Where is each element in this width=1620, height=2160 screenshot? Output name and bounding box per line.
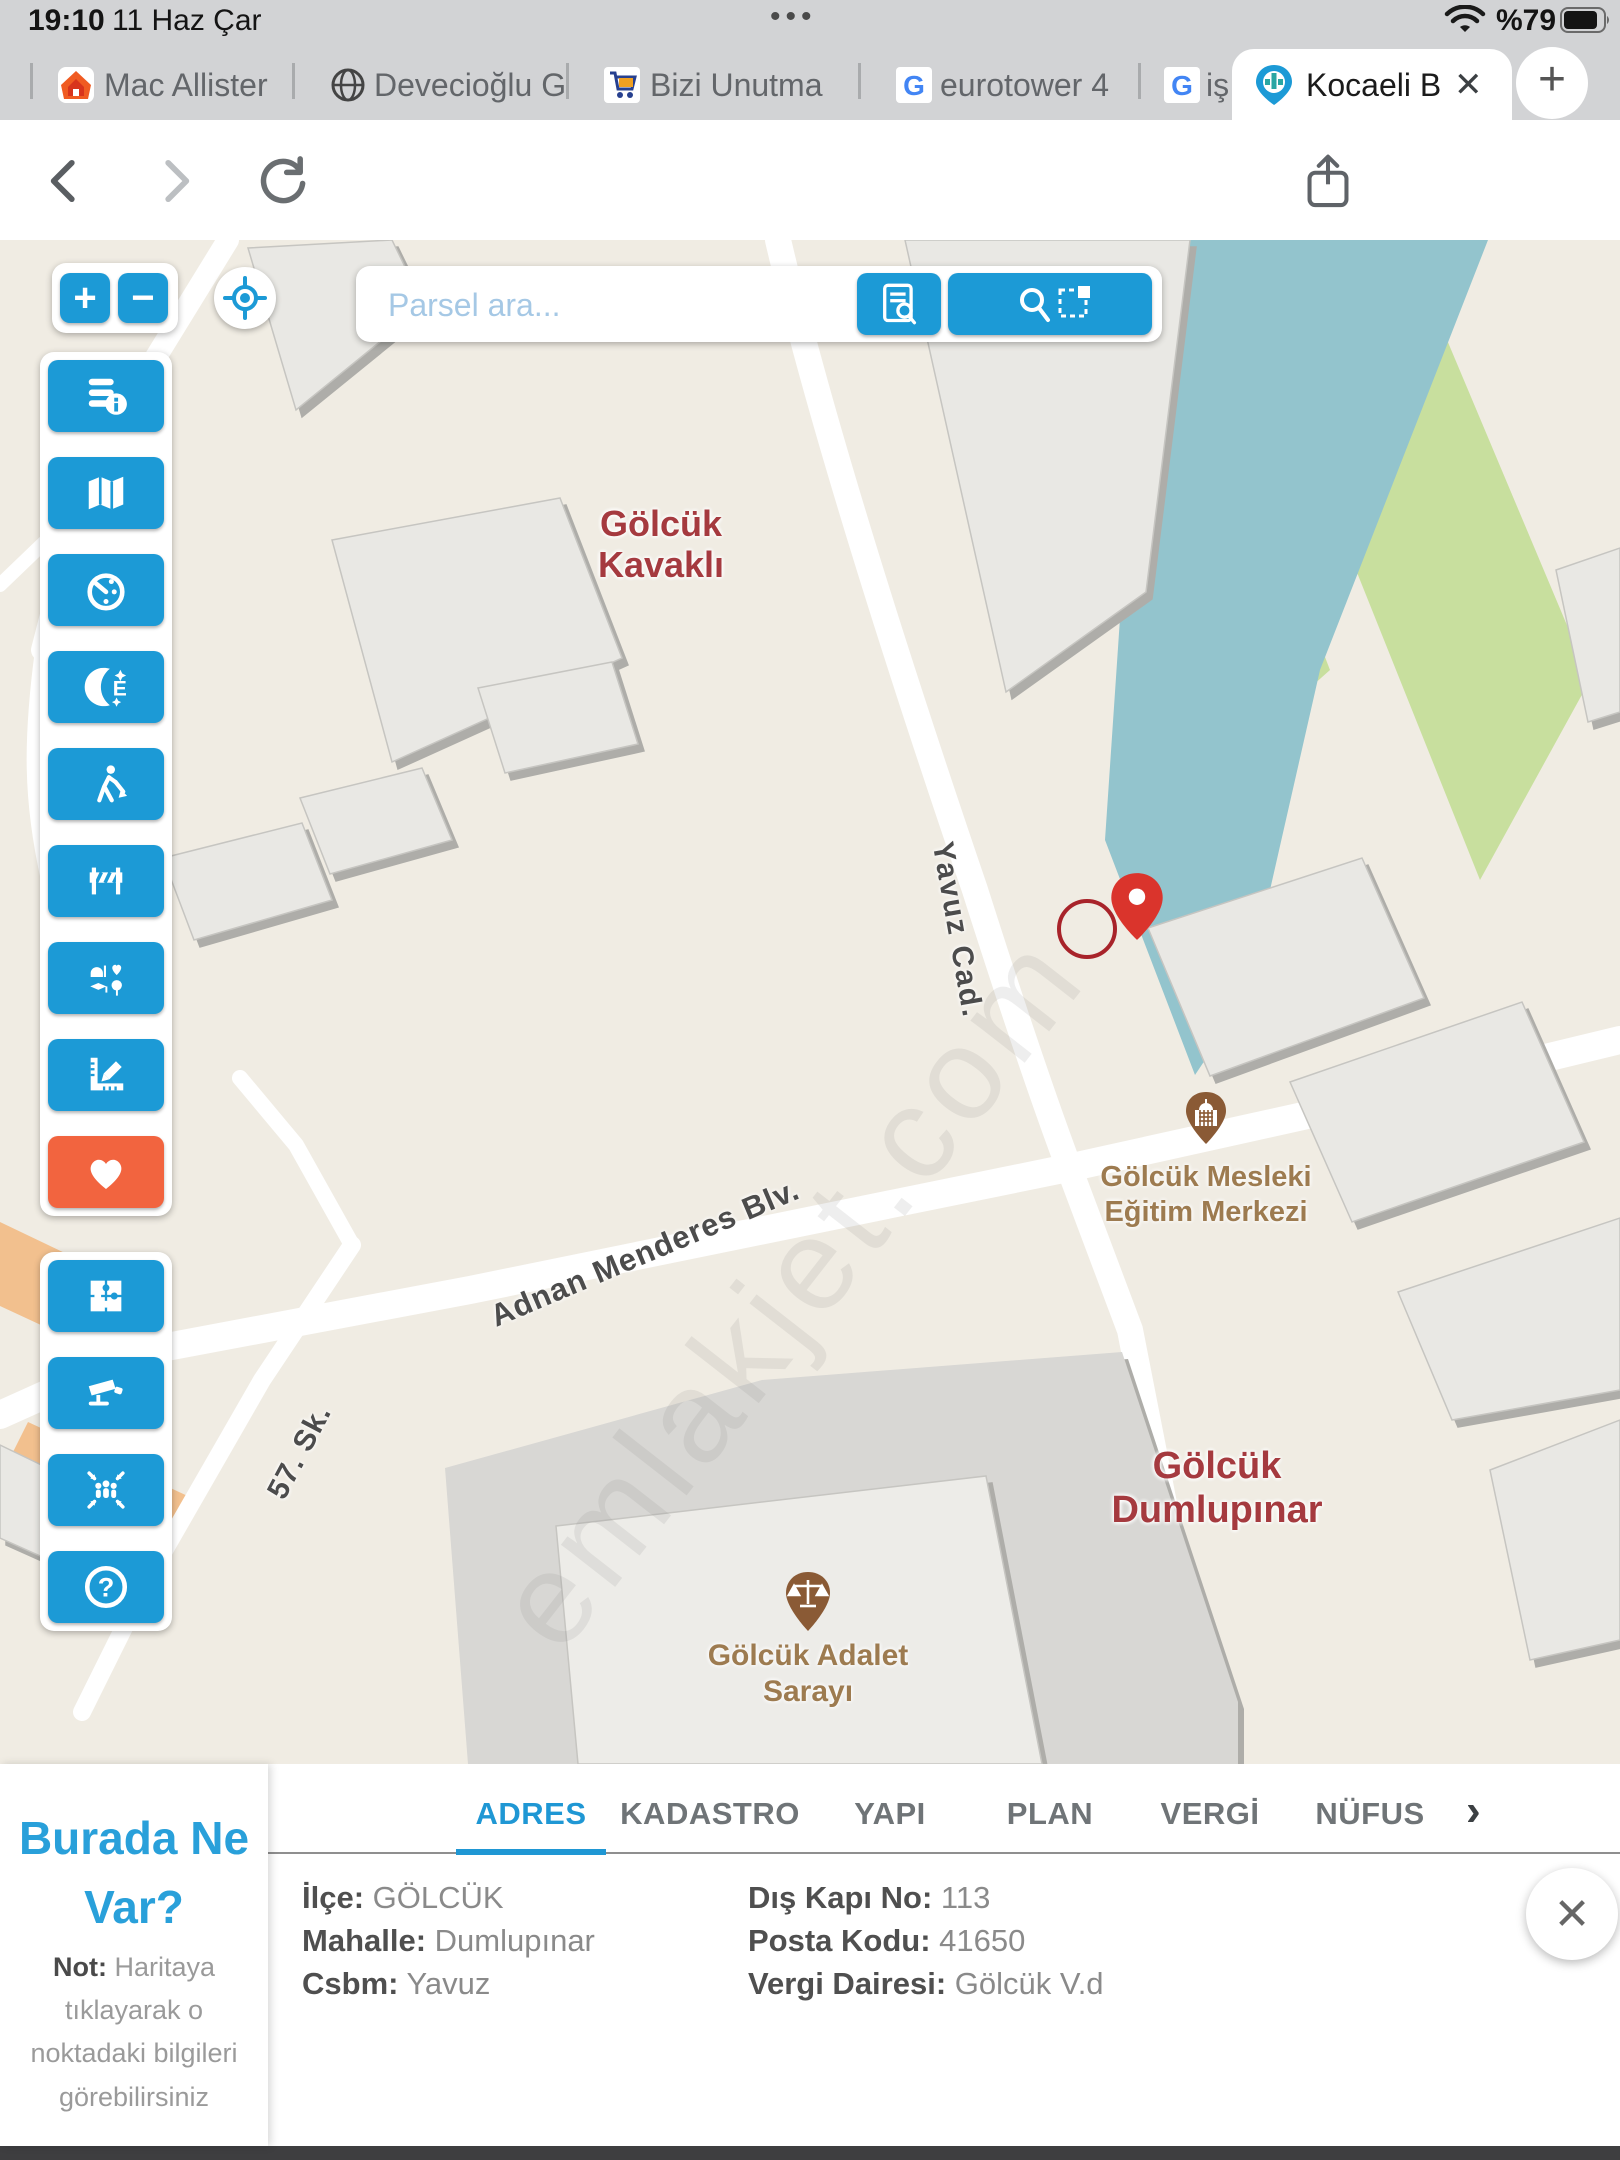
location-pin-icon xyxy=(1108,870,1166,949)
poi-label-adalet: Gölcük Adalet Sarayı xyxy=(688,1638,928,1710)
night-pharmacy-button[interactable]: E xyxy=(48,651,164,723)
battery-icon xyxy=(1560,7,1612,38)
browser-toolbar: rehber.kocaeli.bel.tr 6 ••• xyxy=(0,120,1620,240)
address-fields-col2: Dış Kapı No: 113 Posta Kodu: 41650 Vergi… xyxy=(748,1876,1104,2005)
poi-label-mesleki: Gölcük Mesleki Eğitim Merkezi xyxy=(1086,1160,1326,1230)
tab-label[interactable]: eurotower 4 xyxy=(940,67,1109,104)
forward-icon[interactable] xyxy=(150,156,200,211)
field-posta-kodu: Posta Kodu: 41650 xyxy=(748,1919,1104,1962)
document-search-button[interactable] xyxy=(857,273,941,335)
map-features xyxy=(0,240,1620,1764)
poi-categories-button[interactable] xyxy=(48,942,164,1014)
barrier-button[interactable] xyxy=(48,845,164,917)
district-label-kavakli: Gölcük Kavaklı xyxy=(561,503,761,586)
district-label-dumlupinar: Gölcük Dumlupınar xyxy=(1097,1445,1337,1532)
tab-separator xyxy=(30,63,33,99)
field-mahalle: Mahalle: Dumlupınar xyxy=(302,1919,595,1962)
info-panel: Burada Ne Var? Not: Haritaya tıklayarak … xyxy=(0,1764,1620,2146)
parcel-search-bar xyxy=(356,266,1162,342)
tab-adres[interactable]: ADRES xyxy=(475,1796,586,1832)
zoom-out-button[interactable]: − xyxy=(118,273,168,323)
parcel-puzzle-button[interactable] xyxy=(48,1260,164,1332)
field-vergi-dairesi: Vergi Dairesi: Gölcük V.d xyxy=(748,1962,1104,2005)
reload-icon[interactable] xyxy=(256,154,310,213)
tab-label[interactable]: iş xyxy=(1206,67,1229,104)
parcel-search-input[interactable] xyxy=(386,274,830,336)
share-icon[interactable] xyxy=(1300,152,1356,217)
tab-yapi[interactable]: YAPI xyxy=(854,1796,926,1832)
tab-separator xyxy=(1138,63,1141,99)
map-canvas[interactable]: emlakjet.com Yavuz Cad. Adnan Menderes B… xyxy=(0,240,1620,1764)
tab-label[interactable]: Mac Allister xyxy=(104,67,268,104)
map-search-button[interactable] xyxy=(948,273,1152,335)
back-icon[interactable] xyxy=(40,156,90,211)
tab-separator xyxy=(292,63,295,99)
zoom-control: + − xyxy=(52,263,178,333)
svg-text:G: G xyxy=(1171,70,1193,101)
info-panel-intro: Burada Ne Var? Not: Haritaya tıklayarak … xyxy=(0,1764,268,2146)
panel-close-button[interactable]: ✕ xyxy=(1526,1868,1618,1960)
map-tools-panel-2: ? xyxy=(40,1252,172,1631)
screen: 19:10 11 Haz Çar ••• %79 Mac Allister De… xyxy=(0,0,1620,2160)
panel-note: Not: Haritaya tıklayarak o noktadaki bil… xyxy=(8,1946,260,2119)
field-dis-kapi-no: Dış Kapı No: 113 xyxy=(748,1876,1104,1919)
svg-text:G: G xyxy=(903,70,925,101)
panel-title: Burada Ne Var? xyxy=(14,1804,254,1942)
google-icon: G xyxy=(1162,65,1202,105)
more-tabs-chevron-icon[interactable]: › xyxy=(1466,1786,1481,1836)
panel-note-label: Not: xyxy=(53,1952,107,1982)
roadworks-button[interactable] xyxy=(48,748,164,820)
tab-label[interactable]: Devecioğlu G xyxy=(374,67,566,104)
more-dots-icon: ••• xyxy=(770,0,817,34)
map-layers-button[interactable] xyxy=(48,457,164,529)
cctv-button[interactable] xyxy=(48,1357,164,1429)
browser-tab-bar: Mac Allister Devecioğlu G Bizi Unutma G … xyxy=(0,41,1620,120)
poi-pin-courthouse-icon xyxy=(782,1570,834,1641)
svg-text:?: ? xyxy=(98,1572,115,1603)
zoom-in-button[interactable]: + xyxy=(60,273,110,323)
help-button[interactable]: ? xyxy=(48,1551,164,1623)
svg-text:E: E xyxy=(113,678,127,701)
tab-label[interactable]: Bizi Unutma xyxy=(650,67,823,104)
tab-separator xyxy=(566,63,569,99)
active-tab-underline xyxy=(456,1849,606,1855)
globe-icon xyxy=(328,65,368,105)
cart-icon xyxy=(602,65,642,105)
layers-info-button[interactable] xyxy=(48,360,164,432)
wifi-icon xyxy=(1444,5,1486,42)
tab-nufus[interactable]: NÜFUS xyxy=(1315,1796,1424,1832)
duty-clock-button[interactable] xyxy=(48,554,164,626)
kocaeli-pin-icon xyxy=(1252,63,1296,112)
poi-pin-school-icon xyxy=(1183,1090,1229,1153)
field-csbm: Csbm: Yavuz xyxy=(302,1962,595,2005)
map-tools-panel: E xyxy=(40,352,172,1216)
measure-button[interactable] xyxy=(48,1039,164,1111)
date: 11 Haz Çar xyxy=(112,4,262,38)
field-ilce: İlçe: GÖLCÜK xyxy=(302,1876,595,1919)
clock: 19:10 xyxy=(28,4,105,38)
home-icon xyxy=(56,65,96,105)
new-tab-button[interactable]: + xyxy=(1516,47,1588,119)
status-bar: 19:10 11 Haz Çar ••• %79 xyxy=(0,0,1620,41)
tab-label: Kocaeli B xyxy=(1306,67,1441,104)
tab-kadastro[interactable]: KADASTRO xyxy=(620,1796,800,1832)
assembly-point-button[interactable] xyxy=(48,1454,164,1526)
locate-button[interactable] xyxy=(214,267,276,329)
close-tab-icon[interactable]: ✕ xyxy=(1454,65,1483,105)
tab-vergi[interactable]: VERGİ xyxy=(1161,1796,1260,1832)
tab-plan[interactable]: PLAN xyxy=(1007,1796,1093,1832)
favorites-button[interactable] xyxy=(48,1136,164,1208)
address-fields-col1: İlçe: GÖLCÜK Mahalle: Dumlupınar Csbm: Y… xyxy=(302,1876,595,2005)
google-icon: G xyxy=(894,65,934,105)
home-indicator xyxy=(0,2146,1620,2160)
active-tab[interactable]: Kocaeli B ✕ xyxy=(1232,49,1512,120)
battery-percent: %79 xyxy=(1496,4,1556,38)
tab-separator xyxy=(858,63,861,99)
